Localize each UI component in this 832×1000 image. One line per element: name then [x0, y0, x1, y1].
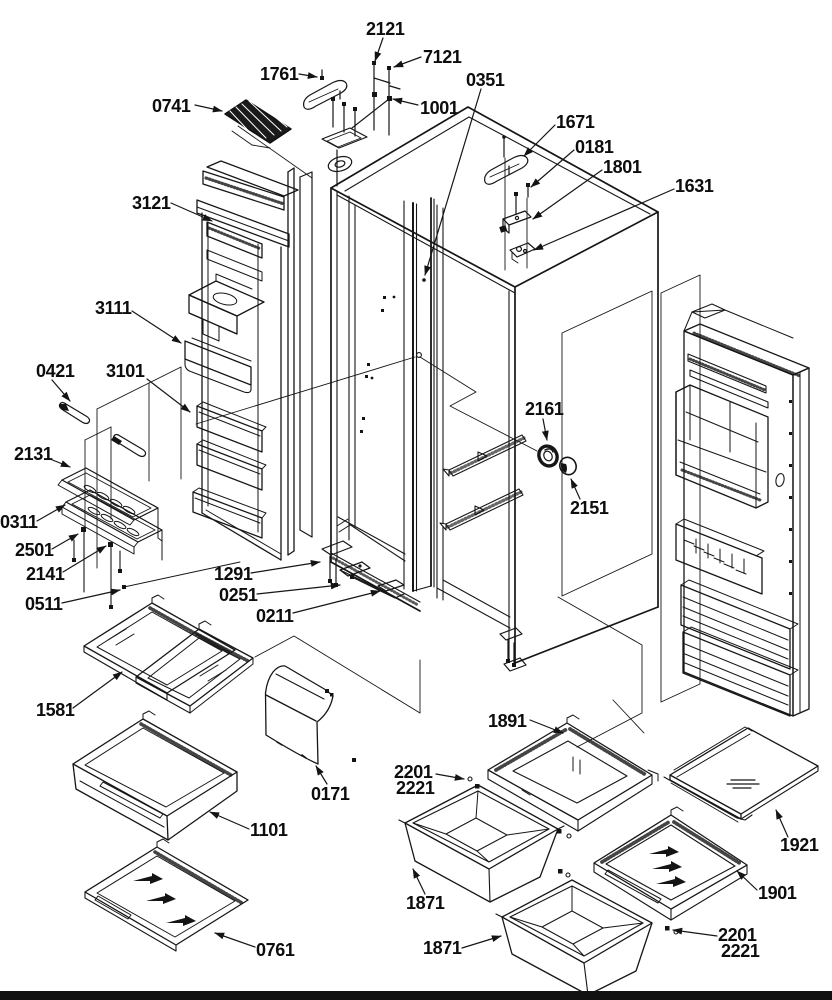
svg-text:2121: 2121 — [366, 19, 405, 39]
svg-text:0251: 0251 — [219, 585, 258, 605]
svg-text:0761: 0761 — [256, 940, 295, 960]
svg-text:7121: 7121 — [423, 47, 462, 67]
svg-text:1871: 1871 — [406, 893, 445, 913]
svg-text:3121: 3121 — [132, 193, 171, 213]
svg-text:1901: 1901 — [758, 883, 797, 903]
svg-text:0181: 0181 — [575, 137, 614, 157]
svg-text:2161: 2161 — [525, 399, 564, 419]
svg-text:1671: 1671 — [556, 112, 595, 132]
svg-text:1761: 1761 — [260, 64, 299, 84]
svg-text:1871: 1871 — [423, 938, 462, 958]
svg-text:2131: 2131 — [14, 444, 53, 464]
svg-text:0421: 0421 — [36, 361, 75, 381]
svg-text:0511: 0511 — [25, 594, 63, 614]
svg-text:1101: 1101 — [250, 820, 288, 840]
svg-text:1891: 1891 — [488, 711, 527, 731]
svg-text:2501: 2501 — [15, 540, 54, 560]
svg-text:0211: 0211 — [256, 606, 294, 626]
svg-text:2141: 2141 — [26, 564, 65, 584]
svg-text:3111: 3111 — [95, 298, 132, 318]
svg-text:1631: 1631 — [675, 176, 714, 196]
svg-text:1921: 1921 — [780, 835, 819, 855]
svg-text:2221: 2221 — [721, 941, 760, 961]
svg-text:0351: 0351 — [466, 70, 505, 90]
svg-text:1581: 1581 — [36, 700, 75, 720]
svg-text:2221: 2221 — [396, 778, 435, 798]
svg-text:0741: 0741 — [152, 96, 191, 116]
svg-text:3101: 3101 — [106, 361, 145, 381]
svg-text:0311: 0311 — [0, 512, 38, 532]
svg-text:1801: 1801 — [603, 157, 642, 177]
svg-text:2151: 2151 — [570, 498, 609, 518]
svg-text:1291: 1291 — [214, 564, 253, 584]
